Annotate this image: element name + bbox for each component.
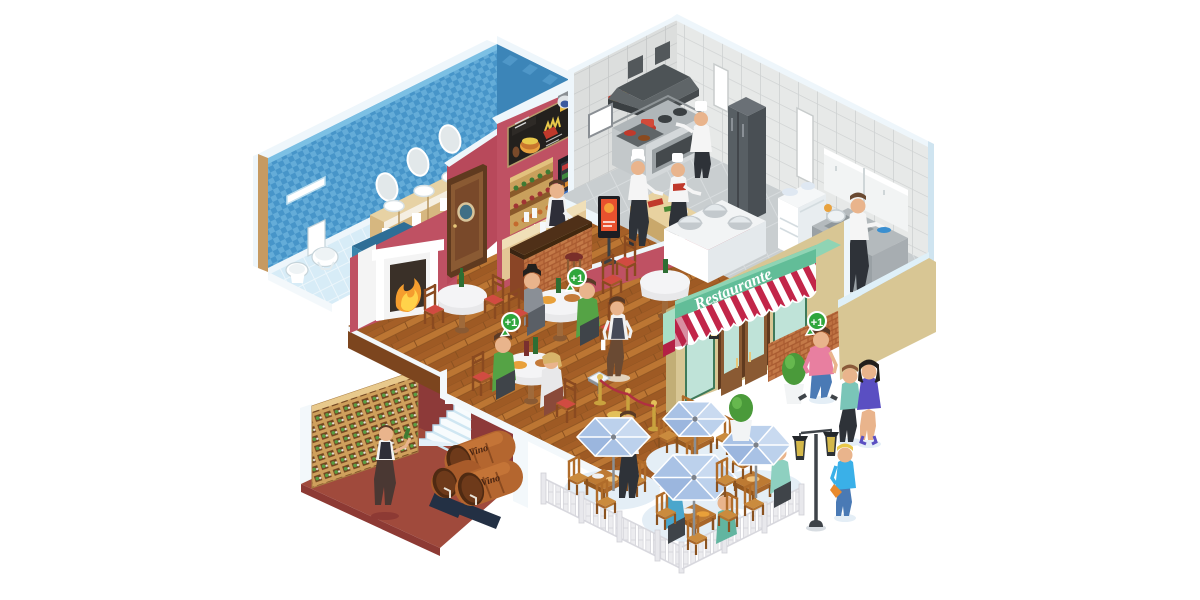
svg-text:+1: +1 (811, 317, 824, 329)
svg-text:+1: +1 (571, 273, 584, 285)
svg-text:+1: +1 (505, 317, 518, 329)
